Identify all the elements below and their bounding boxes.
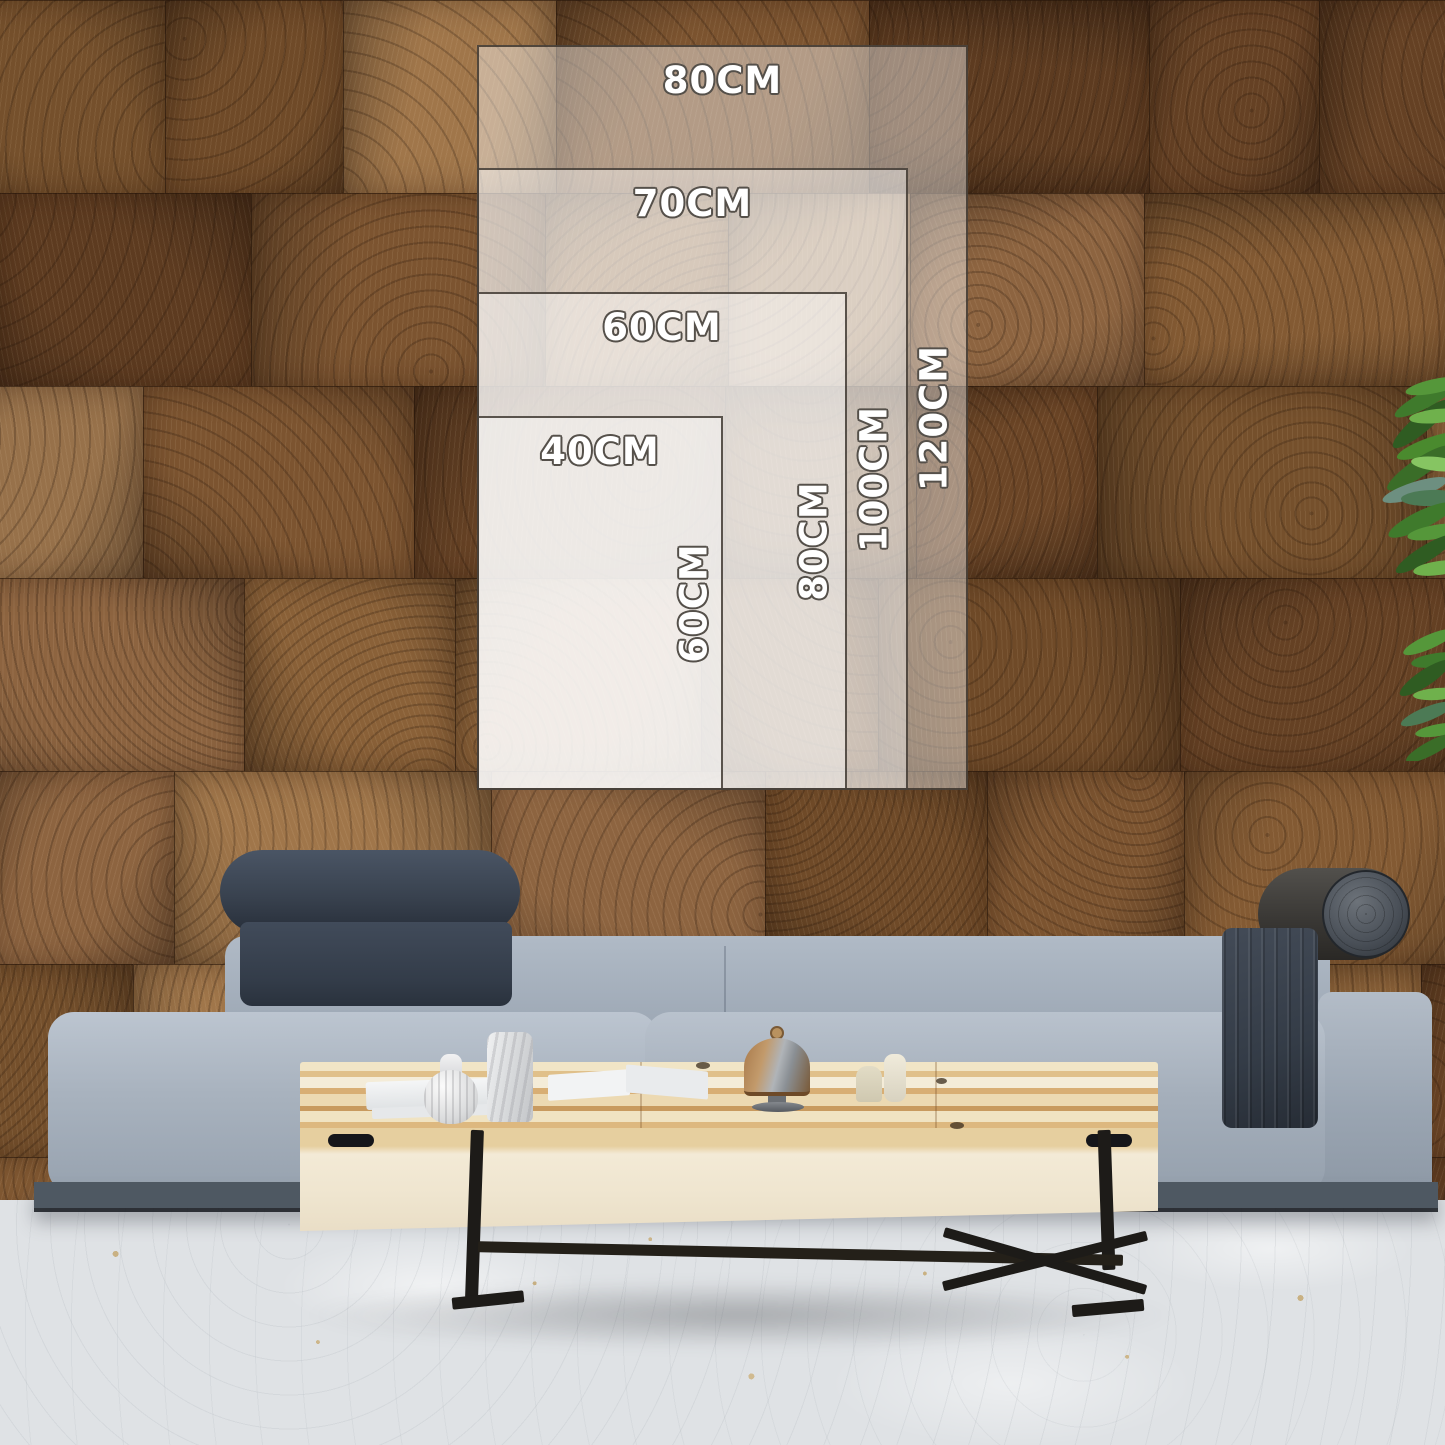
sofa-armrest-right	[1318, 992, 1432, 1204]
size-height-label: 100CM	[853, 406, 896, 552]
table-handle-slot-left	[328, 1134, 374, 1147]
table-shadow	[300, 1280, 1180, 1350]
wood-block	[0, 578, 245, 772]
wood-block	[0, 0, 166, 194]
cloche-dome	[744, 1038, 810, 1096]
gourd-vase	[424, 1070, 478, 1124]
size-height-label: 60CM	[673, 543, 716, 662]
tall-pot	[884, 1054, 906, 1102]
size-height-label: 120CM	[913, 344, 956, 490]
sofa-headrest-panel	[240, 922, 512, 1006]
wood-knot	[950, 1122, 964, 1129]
size-width-label: 40CM	[540, 430, 659, 473]
wood-block	[244, 578, 456, 772]
wood-knot	[936, 1078, 947, 1084]
cylinder-vase	[487, 1032, 533, 1122]
sofa-quilted-cushion-right	[1222, 928, 1318, 1128]
size-width-label: 80CM	[663, 59, 782, 102]
sofa-bolster-end-cap	[1322, 870, 1410, 958]
small-pot	[856, 1066, 882, 1102]
wood-block	[0, 193, 252, 387]
cloche-base	[752, 1102, 804, 1112]
living-room-size-guide-mockup: 80CM 120CM 70CM 100CM 60CM 80CM 40CM 60C…	[0, 0, 1445, 1445]
size-option-40x60: 40CM 60CM	[477, 416, 723, 790]
wood-block	[1144, 193, 1445, 387]
wood-block	[143, 386, 415, 579]
table-plank-seam	[935, 1062, 937, 1132]
wood-block	[0, 386, 144, 579]
size-height-label: 80CM	[793, 481, 836, 600]
wood-block	[165, 0, 344, 194]
size-width-label: 70CM	[633, 182, 752, 225]
plant-lower-leaves	[1385, 626, 1445, 761]
wood-block	[1149, 0, 1320, 194]
size-width-label: 60CM	[602, 306, 721, 349]
wood-block	[0, 771, 175, 965]
wood-block	[1319, 0, 1445, 194]
wood-knot	[696, 1062, 710, 1069]
plant-upper-leaves	[1363, 372, 1445, 582]
